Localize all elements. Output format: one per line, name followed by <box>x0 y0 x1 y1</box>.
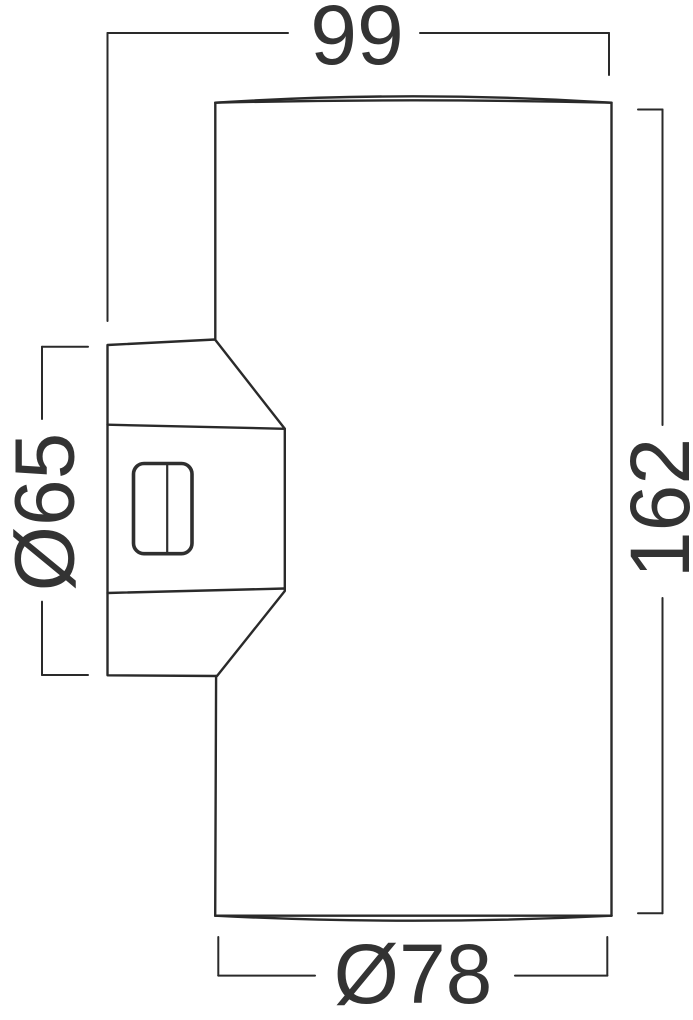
svg-text:Ø65: Ø65 <box>0 433 92 592</box>
svg-text:162: 162 <box>613 438 693 578</box>
svg-text:Ø78: Ø78 <box>334 927 493 1020</box>
svg-text:99: 99 <box>310 0 403 82</box>
